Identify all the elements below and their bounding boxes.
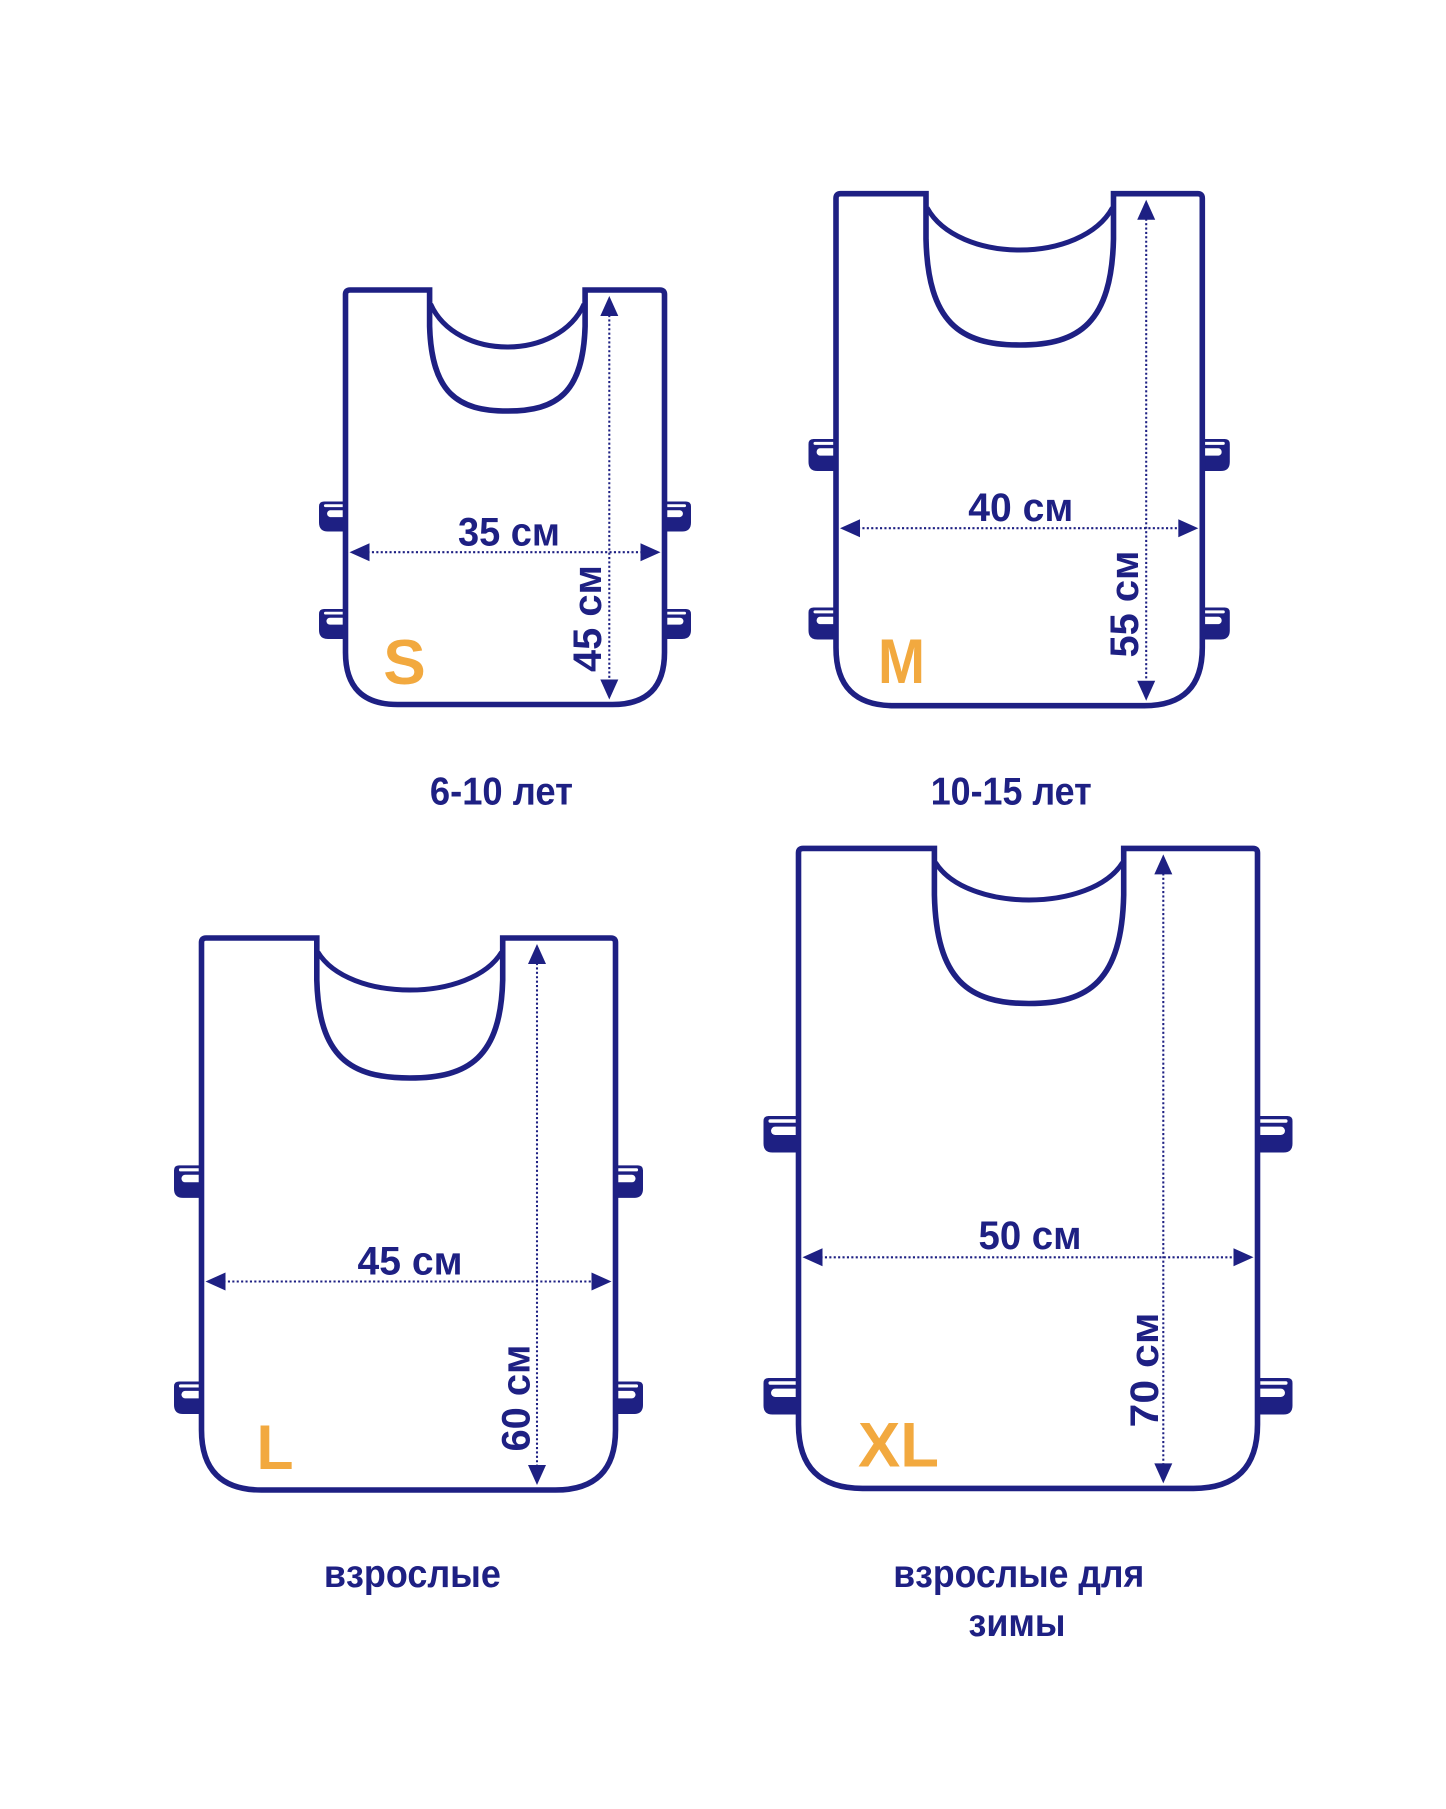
svg-text:10-15 лет: 10-15 лет	[931, 771, 1092, 814]
svg-text:55 см: 55 см	[1103, 551, 1147, 658]
svg-text:взрослые: взрослые	[324, 1553, 501, 1596]
svg-text:60 см: 60 см	[495, 1345, 539, 1452]
svg-text:L: L	[257, 1413, 294, 1483]
svg-text:45 см: 45 см	[566, 565, 610, 672]
svg-text:35 см: 35 см	[458, 511, 560, 555]
svg-text:6-10 лет: 6-10 лет	[430, 771, 573, 814]
svg-text:S: S	[383, 628, 426, 698]
svg-text:зимы: зимы	[969, 1602, 1066, 1645]
svg-text:70 см: 70 см	[1123, 1313, 1167, 1428]
svg-text:XL: XL	[858, 1410, 939, 1480]
svg-text:45 см: 45 см	[358, 1240, 463, 1284]
svg-text:M: M	[878, 627, 925, 697]
svg-text:40 см: 40 см	[968, 486, 1073, 530]
svg-text:взрослые для: взрослые для	[893, 1553, 1144, 1596]
svg-text:50 см: 50 см	[979, 1214, 1082, 1258]
